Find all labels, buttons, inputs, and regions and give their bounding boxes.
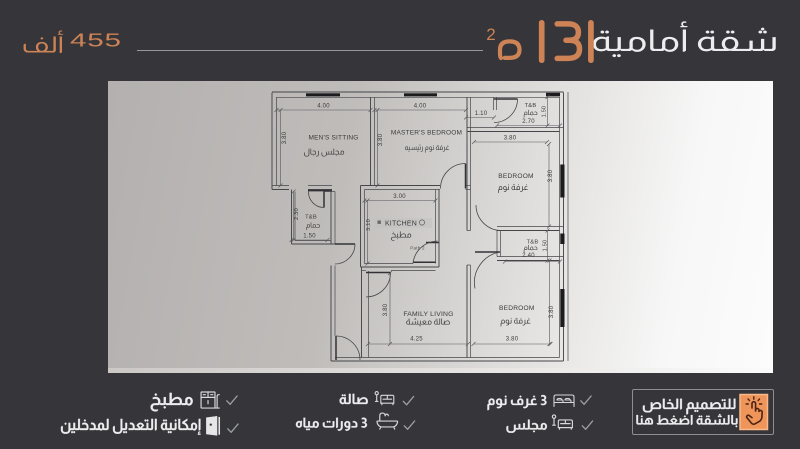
svg-text:3.80: 3.80 [548,169,554,182]
svg-text:KITCHEN: KITCHEN [385,221,417,228]
svg-text:2.40: 2.40 [522,253,535,259]
svg-text:2: 2 [486,25,495,44]
svg-text:2.70: 2.70 [522,119,535,125]
svg-text:3.00: 3.00 [393,194,406,200]
svg-text:T&B: T&B [525,103,537,109]
svg-text:4.25: 4.25 [410,337,423,343]
svg-text:MASTER'S BEDROOM: MASTER'S BEDROOM [391,130,462,137]
svg-text:3.10: 3.10 [366,219,372,231]
svg-text:BEDROOM: BEDROOM [499,305,534,312]
svg-text:455: 455 [70,30,122,51]
svg-text:T&B: T&B [305,215,317,221]
svg-text:3.80: 3.80 [282,131,288,144]
svg-text:FAMILY LIVING: FAMILY LIVING [403,311,453,318]
svg-text:MEN'S SITTING: MEN'S SITTING [308,135,358,142]
svg-text:1.50: 1.50 [542,106,548,118]
svg-text:3.80: 3.80 [506,337,519,343]
svg-text:4.00: 4.00 [414,104,427,110]
svg-text:T&B: T&B [527,240,539,246]
svg-text:3.80: 3.80 [504,136,517,142]
svg-text:3.80: 3.80 [549,305,555,318]
svg-text:1.10: 1.10 [475,111,488,117]
svg-text:1.50: 1.50 [543,240,549,252]
svg-text:3.80: 3.80 [378,133,384,146]
svg-text:1.50: 1.50 [303,234,316,240]
svg-text:3.80: 3.80 [383,303,389,316]
svg-text:Path 2: Path 2 [410,246,425,251]
svg-text:4.00: 4.00 [317,104,330,110]
svg-text:2.30: 2.30 [294,208,300,220]
svg-text:BEDROOM: BEDROOM [498,173,533,180]
